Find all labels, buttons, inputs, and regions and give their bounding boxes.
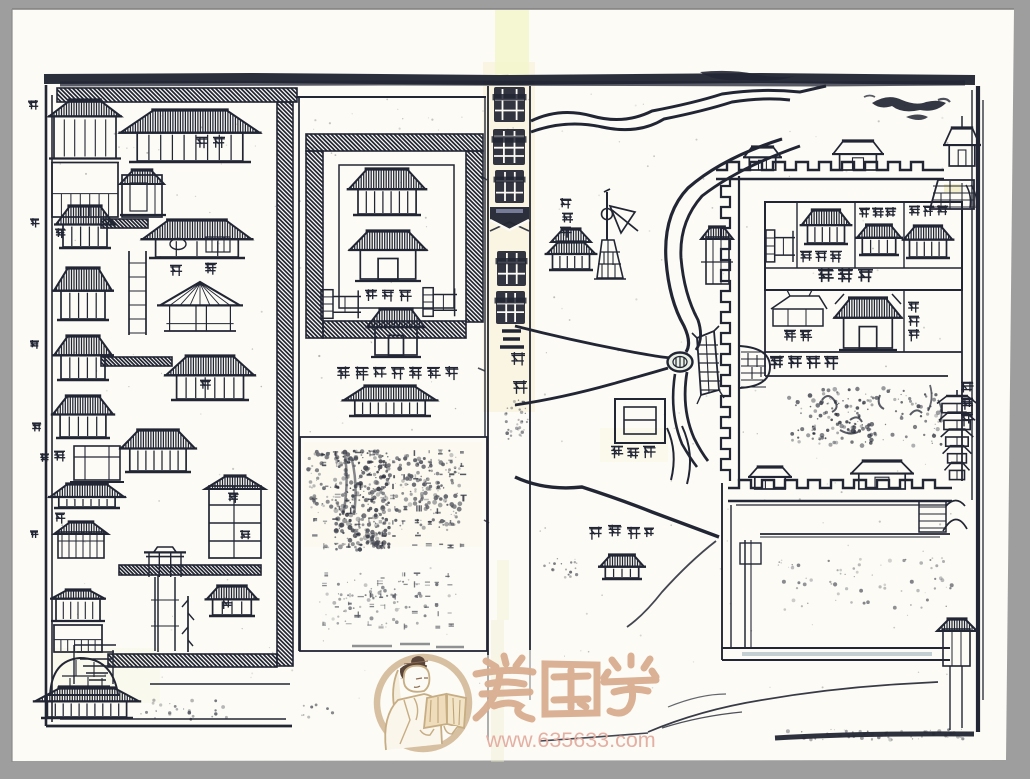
svg-text:www.635633.com: www.635633.com bbox=[485, 728, 656, 752]
